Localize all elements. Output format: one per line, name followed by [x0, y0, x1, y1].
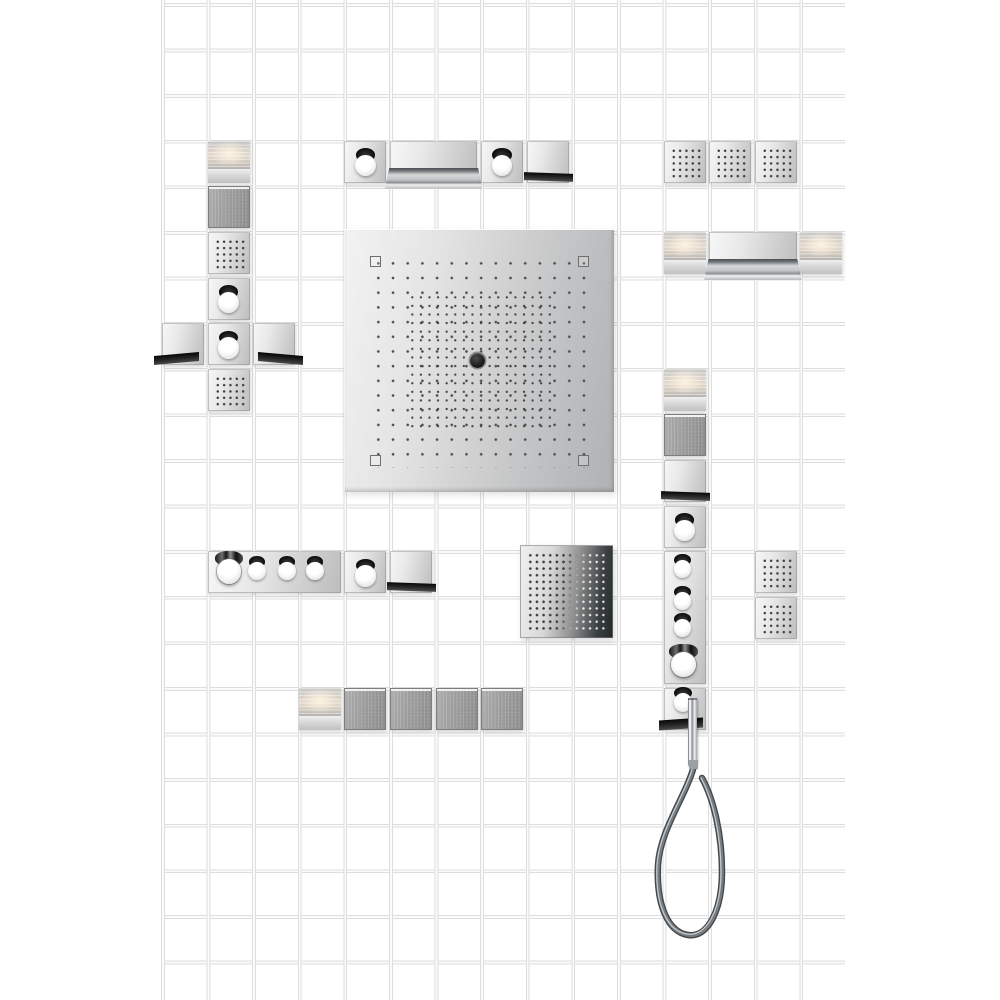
texture-module: [481, 688, 523, 730]
handshower-baton: [688, 698, 697, 768]
texture-module: [390, 688, 432, 730]
thermo-v-module: [664, 551, 706, 684]
control-knob: [354, 563, 376, 585]
light-module: [664, 369, 706, 411]
light-module: [299, 688, 341, 730]
knob-module: [208, 278, 250, 320]
control-knob: [278, 560, 297, 579]
texture-module: [664, 414, 706, 456]
control-knob: [674, 518, 696, 540]
corner-nozzle: [578, 256, 589, 267]
knob-module: [344, 141, 386, 183]
spray6-module: [755, 141, 797, 183]
light-module: [664, 232, 706, 274]
bighead-module: [344, 229, 614, 492]
thermostat-handle: [216, 556, 242, 582]
knob-module: [208, 323, 250, 365]
corner-nozzle: [370, 455, 381, 466]
control-knob: [218, 290, 240, 312]
corner-nozzle: [370, 256, 381, 267]
spout-wide-module: [390, 141, 478, 183]
spout-small-module: [664, 460, 706, 502]
light-module: [208, 141, 250, 183]
shower-wall: [0, 0, 1000, 1000]
spout-right-module: [253, 323, 295, 365]
thermo-h-module: [208, 551, 341, 593]
thermostat-handle: [671, 649, 697, 675]
center-outlet: [470, 353, 485, 368]
shower-hose: [640, 760, 750, 945]
light-module: [800, 232, 842, 274]
control-knob: [218, 335, 240, 357]
spout-small-module: [527, 141, 569, 183]
texture-module: [344, 688, 386, 730]
control-knob: [673, 617, 692, 636]
spray6-module: [755, 551, 797, 593]
control-knob: [673, 590, 692, 609]
corner-nozzle: [578, 455, 589, 466]
control-knob: [248, 560, 267, 579]
spray6-module: [709, 141, 751, 183]
control-knob: [491, 153, 513, 175]
hose-connector: [689, 760, 698, 769]
spray6-module: [664, 141, 706, 183]
handshower-module: [664, 688, 706, 730]
spout-small-module: [390, 551, 432, 593]
knob-module: [664, 506, 706, 548]
control-knob: [306, 560, 325, 579]
texture-module: [208, 186, 250, 228]
knob-module: [344, 551, 386, 593]
texture-module: [436, 688, 478, 730]
spray6-module: [208, 369, 250, 411]
control-knob: [354, 153, 376, 175]
spray6-module: [208, 232, 250, 274]
knob-module: [481, 141, 523, 183]
spout-wide-module: [709, 232, 797, 274]
control-knob: [673, 558, 692, 577]
spray12-module: [520, 545, 613, 638]
spray6-module: [755, 597, 797, 639]
spout-left-module: [162, 323, 204, 365]
